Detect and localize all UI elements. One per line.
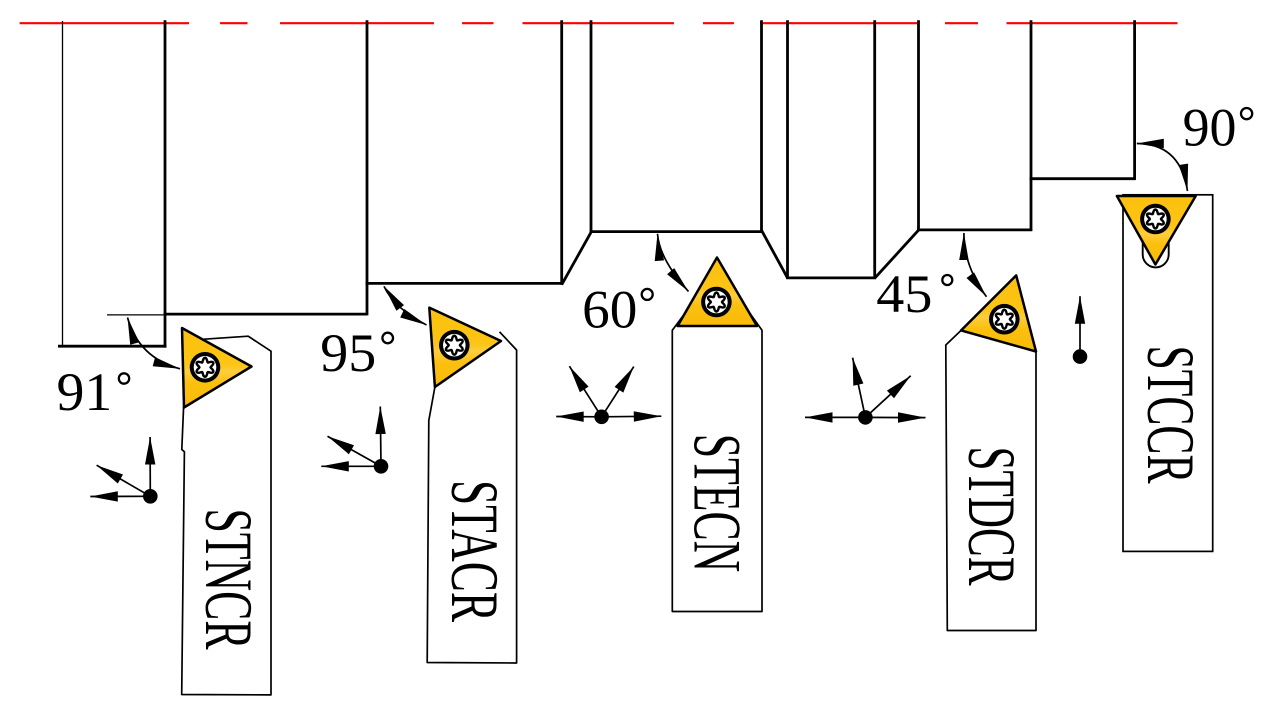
svg-text:STECN: STECN [680,434,756,573]
svg-text:95: 95 [320,323,376,383]
svg-text:STNCR: STNCR [191,509,267,650]
svg-text:90: 90 [1183,97,1237,157]
svg-text:45: 45 [876,264,932,324]
svg-text:60: 60 [582,279,637,339]
svg-text:STACR: STACR [437,480,513,622]
svg-text:91: 91 [57,362,113,422]
svg-text:STDCR: STDCR [954,447,1030,586]
svg-text:STCCR: STCCR [1133,346,1209,484]
